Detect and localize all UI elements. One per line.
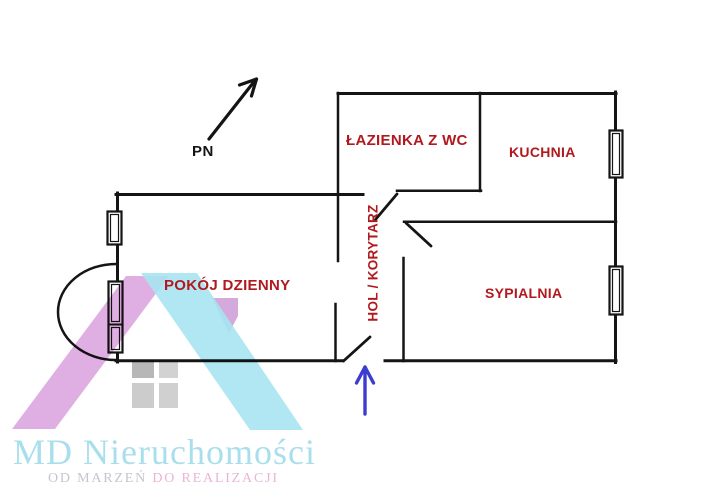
brand-logo-text: MD Nieruchomości [13, 434, 316, 470]
bedroom-door-leaf [406, 223, 431, 246]
north-arrow-icon [209, 79, 257, 139]
window-kitchen-right [610, 131, 623, 178]
north-label: PN [192, 144, 214, 159]
room-label-bathroom: ŁAZIENKA Z WC [346, 133, 468, 148]
brand-tagline-right: DO REALIZACJI [152, 471, 278, 486]
floor-plan-drawing [0, 0, 707, 500]
door-swings [344, 194, 432, 361]
brand-tagline: OD MARZEŃ DO REALIZACJI [48, 471, 279, 486]
floor-plan-page: ŁAZIENKA Z WC KUCHNIA POKÓJ DZIENNY SYPI… [0, 0, 707, 500]
entrance-arrow-icon [357, 367, 374, 414]
watermark-house-logo [12, 273, 303, 430]
room-label-living-room: POKÓJ DZIENNY [164, 278, 290, 293]
room-label-bedroom: SYPIALNIA [485, 286, 562, 300]
house-window-squares [132, 360, 178, 408]
window-living-left-upper [108, 212, 122, 245]
entrance-door-leaf [344, 337, 371, 361]
room-label-kitchen: KUCHNIA [509, 145, 576, 159]
room-label-hall: HOL / KORYTARZ [366, 204, 380, 321]
brand-tagline-left: OD MARZEŃ [48, 471, 147, 486]
window-bedroom-right [610, 267, 623, 315]
